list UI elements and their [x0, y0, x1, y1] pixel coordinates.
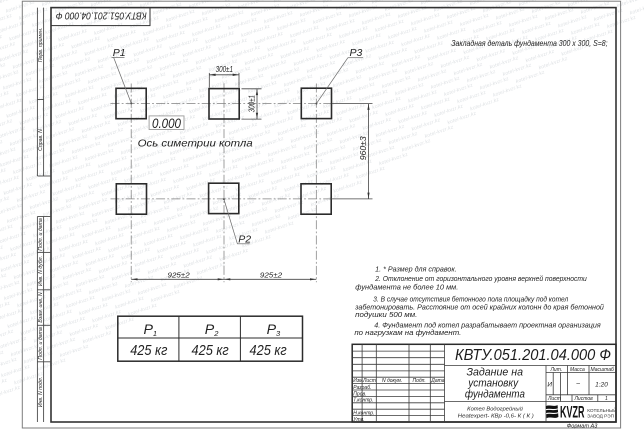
svg-text:Heatexpert- КВр -0,6- К ( К ): Heatexpert- КВр -0,6- К ( К ) — [458, 413, 534, 419]
svg-text:300±1: 300±1 — [216, 65, 233, 74]
svg-text:4. Фундамент под котел разраба: 4. Фундамент под котел разрабатывает про… — [374, 321, 601, 329]
svg-text:КВТУ.051.201.04.000 Ф: КВТУ.051.201.04.000 Ф — [455, 347, 611, 364]
svg-text:Котел Водогрейный: Котел Водогрейный — [467, 406, 523, 413]
svg-text:Задание на: Задание на — [467, 366, 524, 378]
svg-text:300±1: 300±1 — [248, 95, 257, 112]
svg-text:Подп. и дата: Подп. и дата — [38, 327, 44, 360]
svg-text:Р1: Р1 — [113, 47, 126, 59]
svg-text:925±2: 925±2 — [168, 271, 190, 280]
svg-text:0.000: 0.000 — [152, 116, 181, 131]
svg-text:фундамента не более 10 мм.: фундамента не более 10 мм. — [355, 284, 458, 292]
svg-text:подушки 500 мм.: подушки 500 мм. — [355, 311, 417, 319]
svg-text:КОТЕЛЬНЫЙ: КОТЕЛЬНЫЙ — [587, 406, 616, 413]
svg-text:Утв.: Утв. — [353, 417, 364, 423]
svg-text:1: 1 — [153, 329, 157, 338]
svg-text:425 кг: 425 кг — [250, 342, 288, 359]
svg-text:960±3: 960±3 — [359, 136, 368, 161]
svg-text:Т.контр.: Т.контр. — [353, 398, 373, 404]
svg-text:Подп. и дата: Подп. и дата — [38, 218, 44, 251]
svg-text:по нагрузкам на фундамент.: по нагрузкам на фундамент. — [354, 329, 461, 337]
svg-text:Н.контр.: Н.контр. — [353, 411, 374, 417]
svg-text:КВТУ.051.201.04.000 Ф: КВТУ.051.201.04.000 Ф — [56, 9, 147, 21]
svg-text:Ось симетрии котла: Ось симетрии котла — [138, 137, 253, 149]
svg-text:2: 2 — [213, 329, 219, 338]
svg-text:Масса: Масса — [570, 367, 585, 373]
svg-text:Пров.: Пров. — [353, 391, 366, 397]
svg-text:Лит.: Лит. — [550, 367, 563, 373]
svg-text:Инв. N дубл.: Инв. N дубл. — [38, 256, 44, 286]
svg-text:Перв. примен.: Перв. примен. — [38, 28, 44, 62]
svg-text:Подп.: Подп. — [413, 378, 426, 384]
svg-text:забетонировать. Расстояние от: забетонировать. Расстояние от осей крайн… — [354, 304, 604, 312]
svg-text:Листов: Листов — [574, 396, 594, 402]
svg-text:425 кг: 425 кг — [130, 342, 168, 359]
svg-text:Р2: Р2 — [238, 234, 251, 246]
svg-text:Разраб.: Разраб. — [353, 385, 371, 391]
svg-text:Р3: Р3 — [350, 47, 363, 59]
svg-text:N докум.: N докум. — [382, 378, 402, 384]
svg-text:KVZR: KVZR — [560, 403, 585, 421]
svg-text:1. * Размер для справок.: 1. * Размер для справок. — [375, 266, 457, 274]
svg-text:Лист: Лист — [547, 396, 561, 402]
svg-text:фундамента: фундамента — [465, 388, 525, 400]
svg-text:–: – — [575, 381, 580, 388]
svg-text:Лист: Лист — [362, 378, 376, 384]
svg-text:ЗАВОД РЭП: ЗАВОД РЭП — [587, 414, 614, 419]
svg-text:Взам. инв. N: Взам. инв. N — [38, 292, 44, 322]
svg-text:Инв. N подл.: Инв. N подл. — [38, 377, 44, 407]
svg-text:Справ. N: Справ. N — [38, 129, 44, 151]
svg-text:425 кг: 425 кг — [192, 342, 230, 359]
svg-text:1:20: 1:20 — [595, 382, 608, 389]
svg-text:925±2: 925±2 — [260, 271, 282, 280]
svg-text:Масштаб: Масштаб — [591, 367, 615, 373]
svg-text:3. В случае отсутствия бетонно: 3. В случае отсутствия бетонного пола пл… — [373, 296, 568, 304]
svg-text:Закладная деталь фундамента 3: Закладная деталь фундамента 300 х 300, S… — [451, 39, 607, 48]
svg-text:1: 1 — [605, 396, 608, 402]
svg-text:Дата: Дата — [430, 378, 444, 384]
svg-text:И: И — [547, 382, 552, 389]
svg-text:Формат А3: Формат А3 — [567, 424, 598, 430]
svg-text:2. Отклонение от горизонтально: 2. Отклонение от горизонтального уровня … — [374, 275, 587, 283]
